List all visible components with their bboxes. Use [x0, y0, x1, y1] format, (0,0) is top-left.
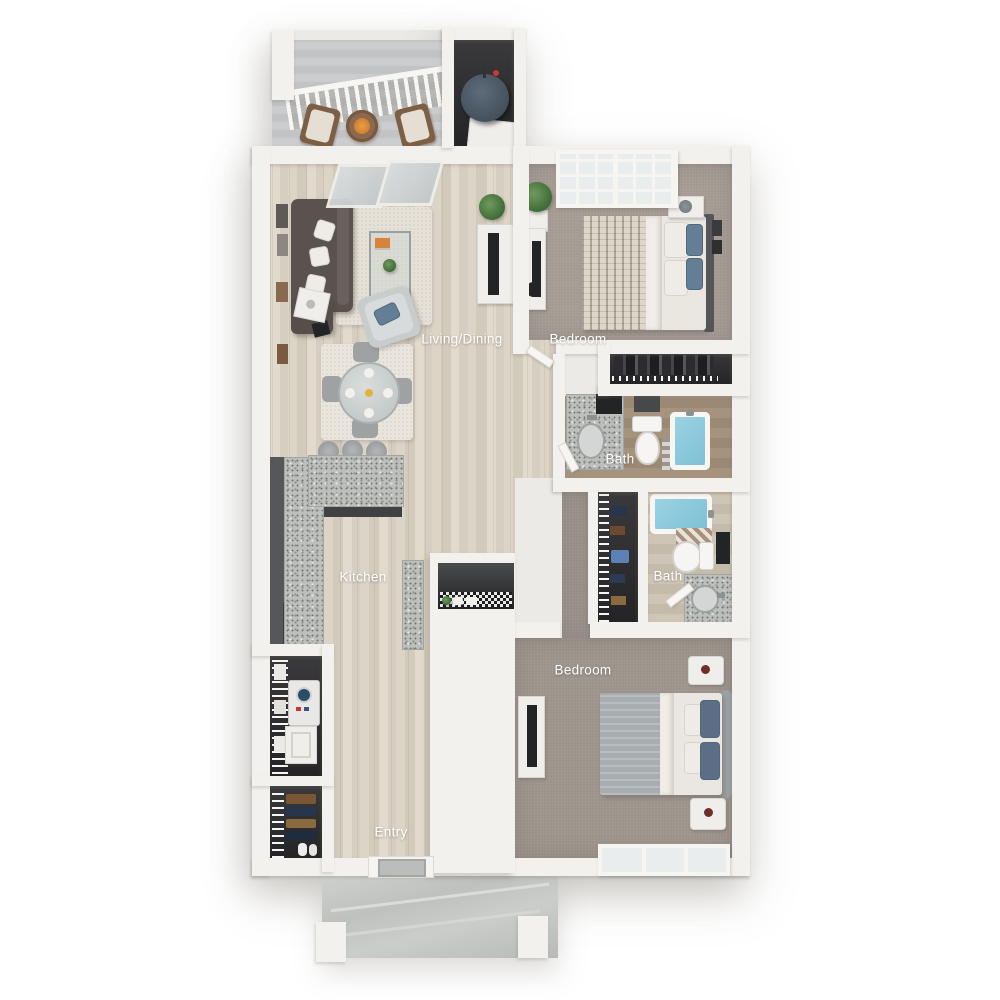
- wall-bedroom2-north-b: [590, 622, 750, 638]
- living-plant: [479, 194, 505, 220]
- laundry-wall-right: [322, 644, 334, 872]
- floorplan-canvas: Living/Dining Bedroom Bath Bath Kitchen …: [0, 0, 1000, 1000]
- bath1-toilet: [632, 416, 660, 466]
- side-table: [293, 287, 331, 323]
- wall-bedroom2-north-a: [513, 622, 560, 638]
- tv-console-living: [477, 224, 515, 304]
- label-bath-bottom: Bath: [654, 569, 683, 584]
- bedroom2-nightstand-bottom: [690, 798, 726, 830]
- vestibule-carpet: [562, 492, 590, 638]
- bath1-mirror: [634, 396, 660, 412]
- balcony-table: [346, 110, 378, 142]
- balcony-post: [272, 30, 294, 100]
- closet1-clothes: [612, 350, 718, 380]
- washer-dryer: [288, 680, 320, 726]
- dining-table: [338, 362, 400, 424]
- outer-wall-left: [252, 146, 270, 876]
- bedroom1-window: [556, 150, 678, 208]
- wall-hall-right: [553, 354, 565, 490]
- water-heater: [461, 74, 509, 122]
- outer-wall-right: [732, 146, 750, 876]
- wall-closet2-bath2: [638, 492, 648, 624]
- bedroom2-window: [598, 844, 730, 876]
- closet2-shelving: [599, 494, 637, 622]
- stoop-post-left: [316, 922, 346, 962]
- label-kitchen: Kitchen: [339, 570, 386, 585]
- kitchen-counter-sink-run: [308, 455, 404, 507]
- bedroom2-bed: [600, 690, 732, 798]
- stoop-post-right: [518, 916, 548, 958]
- closet-divider-wall: [252, 776, 334, 786]
- wall-art-frames: [276, 204, 290, 364]
- bath1-vanity-cabinet: [596, 394, 622, 414]
- bath2-towel-cabinet: [716, 532, 730, 564]
- bath1-shower-curtain: [662, 438, 670, 470]
- bedroom1-media-dresser: [527, 228, 546, 310]
- entry-doormat: [378, 859, 426, 877]
- utility-wall-left: [442, 28, 454, 148]
- bath2-toilet: [672, 540, 714, 570]
- wall-living-bedroom1: [513, 146, 529, 354]
- label-living-dining: Living/Dining: [421, 332, 502, 347]
- label-bedroom-top: Bedroom: [550, 332, 607, 347]
- bedroom1-wall-art: [712, 220, 723, 258]
- label-entry: Entry: [374, 825, 407, 840]
- coat-closet-contents: [272, 788, 320, 858]
- bath1-bathtub: [670, 412, 710, 470]
- bath2-vanity: [684, 574, 734, 624]
- bedroom1-bed: [582, 214, 714, 332]
- label-bath-top: Bath: [606, 452, 635, 467]
- kitchen-peninsula: [402, 560, 424, 650]
- wall-closet1-bath1: [598, 384, 750, 396]
- label-bedroom-bottom: Bedroom: [555, 663, 612, 678]
- entry-niche: [438, 563, 514, 609]
- wall-mid-horizontal: [553, 478, 750, 492]
- wall-vestibule-closet2: [588, 492, 598, 624]
- bedroom2-tv-stand: [518, 696, 545, 778]
- laundry-cabinet: [285, 726, 317, 764]
- utility-wall-right: [514, 28, 526, 148]
- bedroom2-nightstand-top: [688, 656, 724, 685]
